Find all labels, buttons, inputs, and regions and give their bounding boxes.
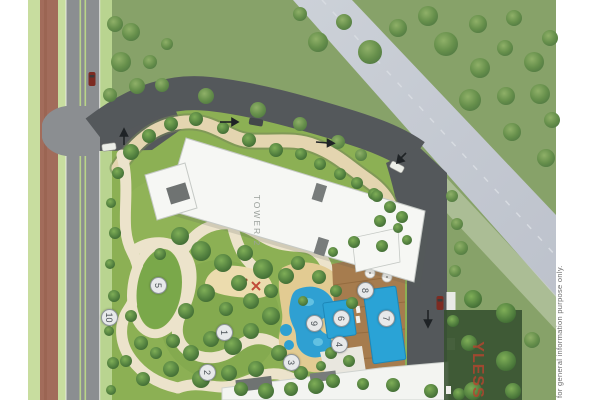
site-plan-canvas: TOWER 2 1 2 3 4 5 6 7 8 9 10 YLESS for g… — [0, 0, 600, 400]
left-road-corridor — [28, 0, 112, 400]
site-plan-graphic — [0, 0, 600, 400]
car-icon — [437, 296, 444, 310]
car-icon — [89, 72, 96, 86]
parking-bay — [447, 292, 456, 310]
